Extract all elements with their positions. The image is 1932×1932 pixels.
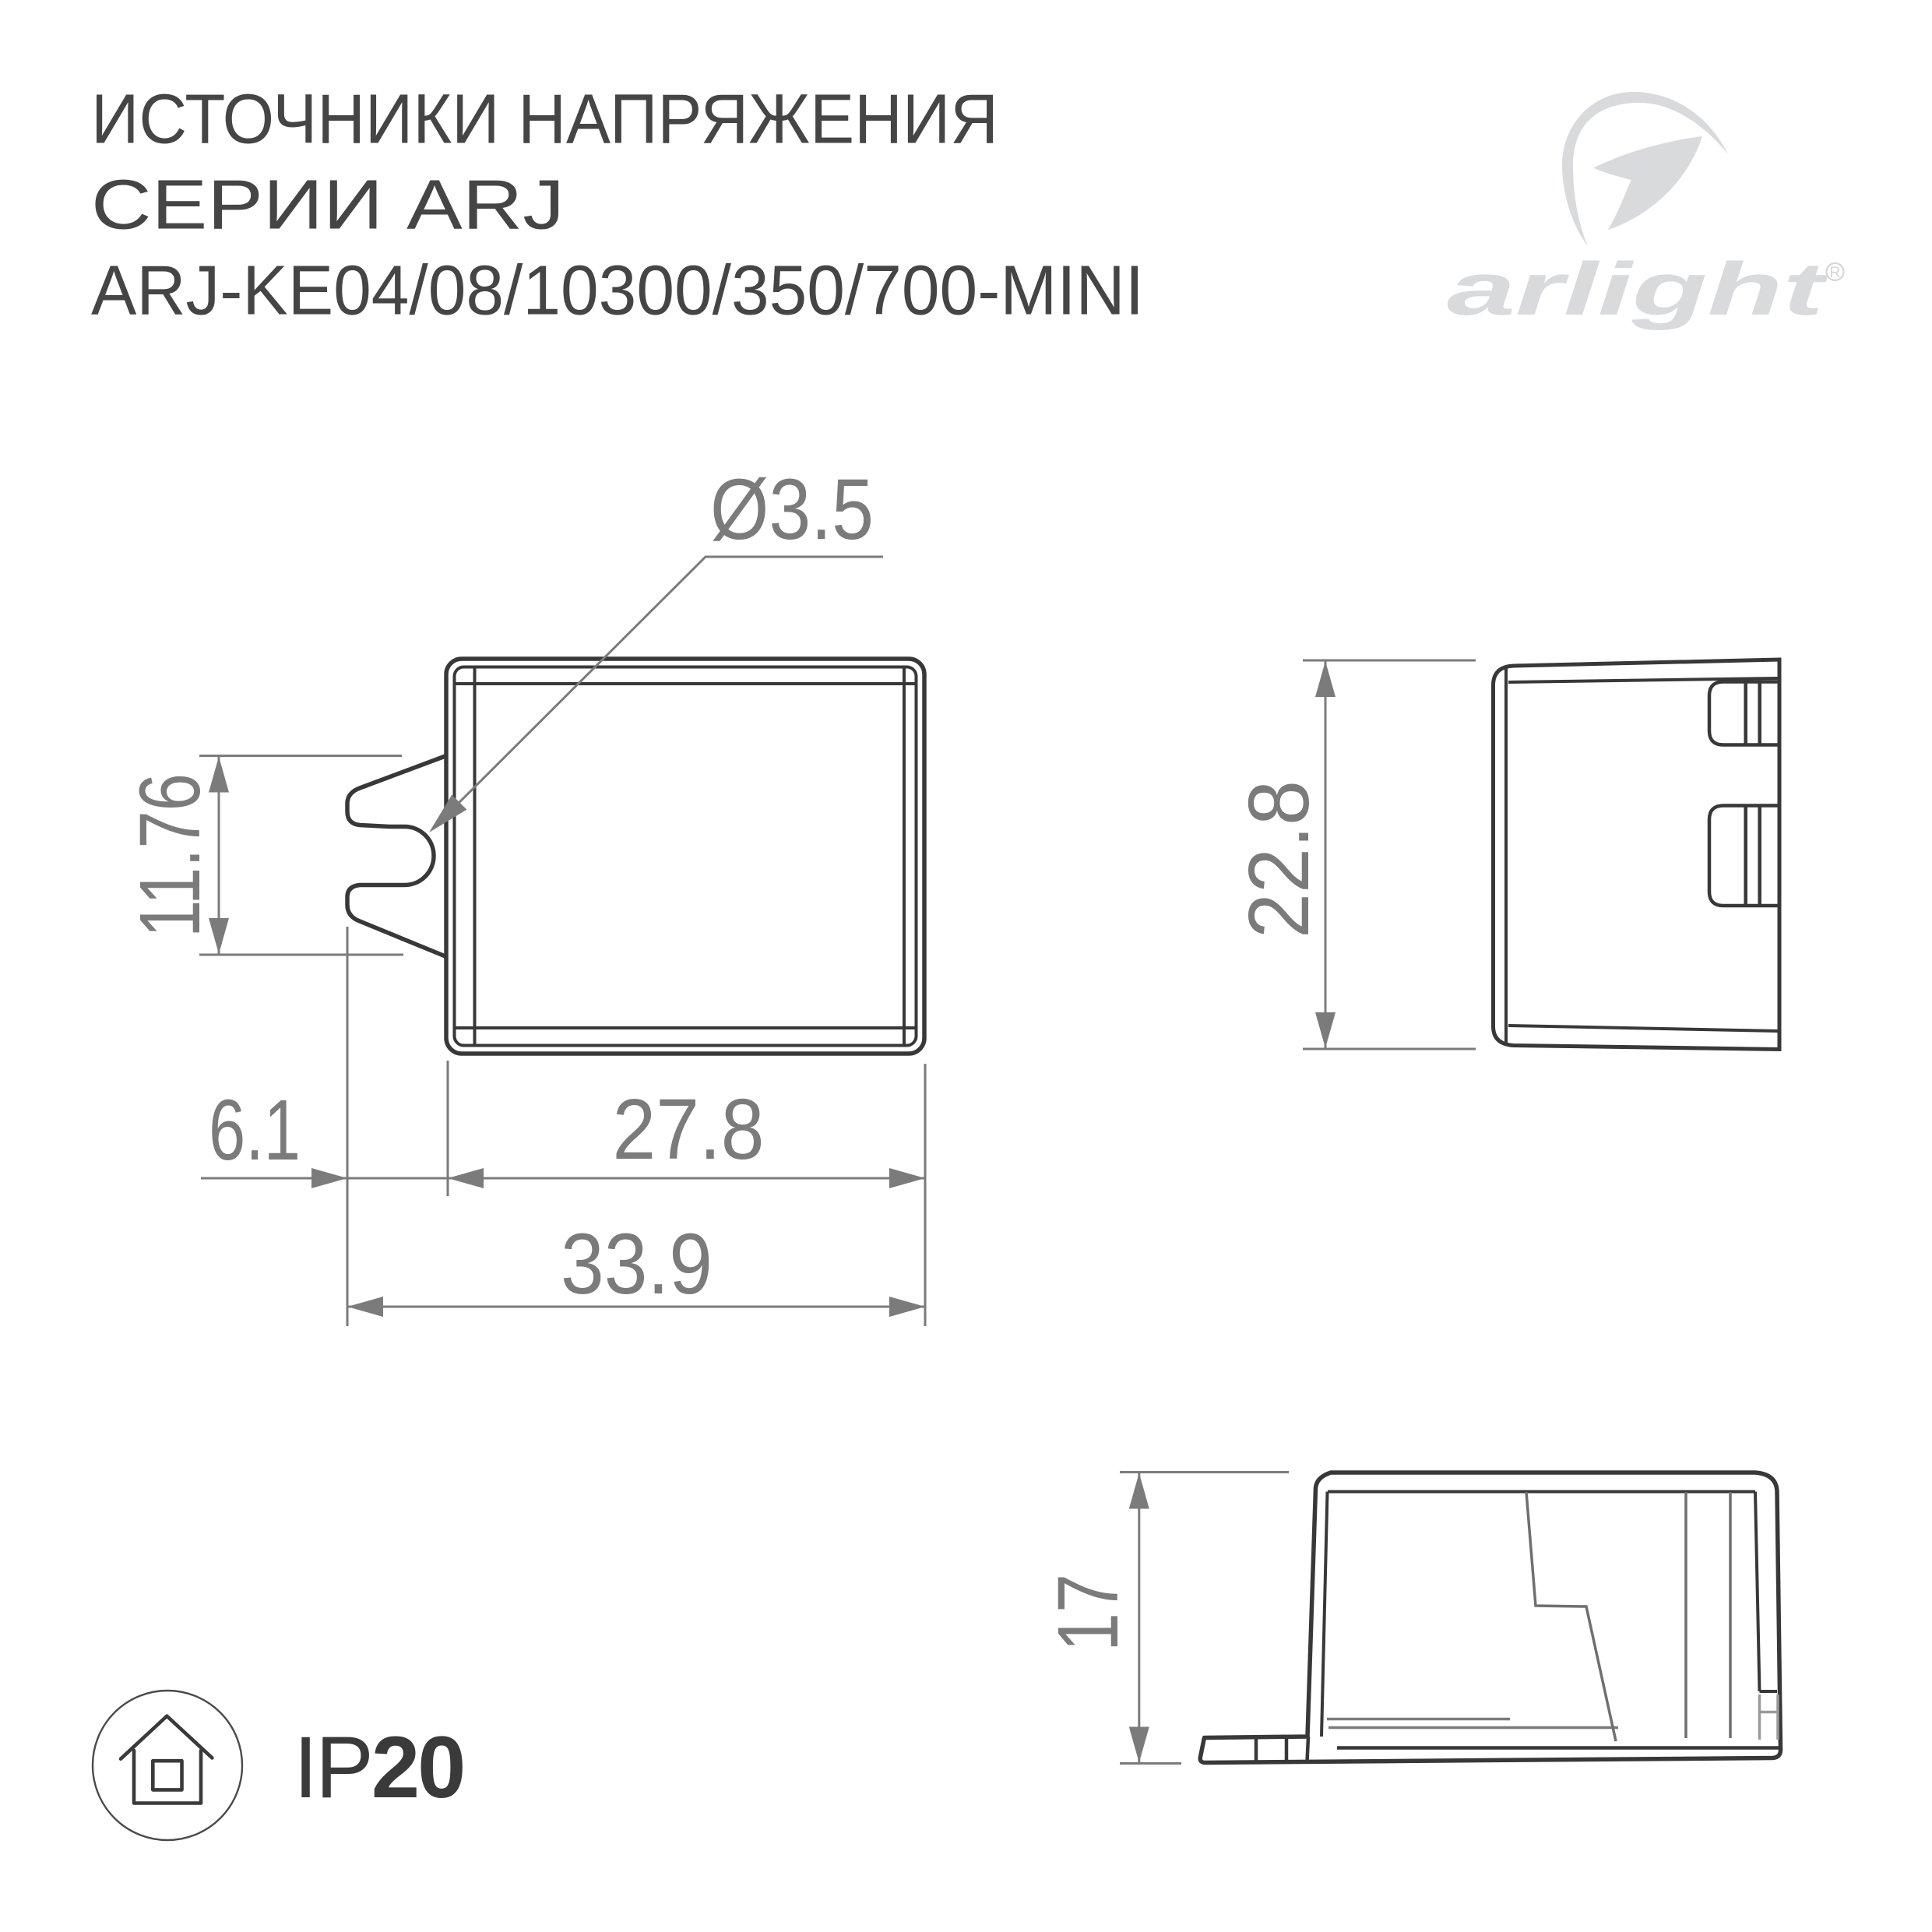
svg-text:ИСТОЧНИКИ НАПРЯЖЕНИЯ: ИСТОЧНИКИ НАПРЯЖЕНИЯ bbox=[91, 81, 998, 159]
svg-text:11.76: 11.76 bbox=[122, 773, 218, 938]
svg-text:27.8: 27.8 bbox=[613, 1082, 765, 1177]
svg-text:СЕРИИ ARJ: СЕРИИ ARJ bbox=[91, 167, 565, 245]
svg-text:R: R bbox=[1830, 265, 1841, 281]
svg-text:arlight: arlight bbox=[1447, 248, 1829, 331]
svg-text:IP20: IP20 bbox=[294, 1719, 463, 1816]
svg-text:17: 17 bbox=[1040, 1574, 1136, 1652]
svg-text:33.9: 33.9 bbox=[561, 1216, 713, 1312]
svg-text:22.8: 22.8 bbox=[1231, 780, 1327, 938]
svg-text:ARJ-KE04/08/10300/350/700-MINI: ARJ-KE04/08/10300/350/700-MINI bbox=[91, 252, 1144, 330]
svg-text:6.1: 6.1 bbox=[209, 1082, 301, 1178]
svg-text:Ø3.5: Ø3.5 bbox=[710, 462, 874, 558]
